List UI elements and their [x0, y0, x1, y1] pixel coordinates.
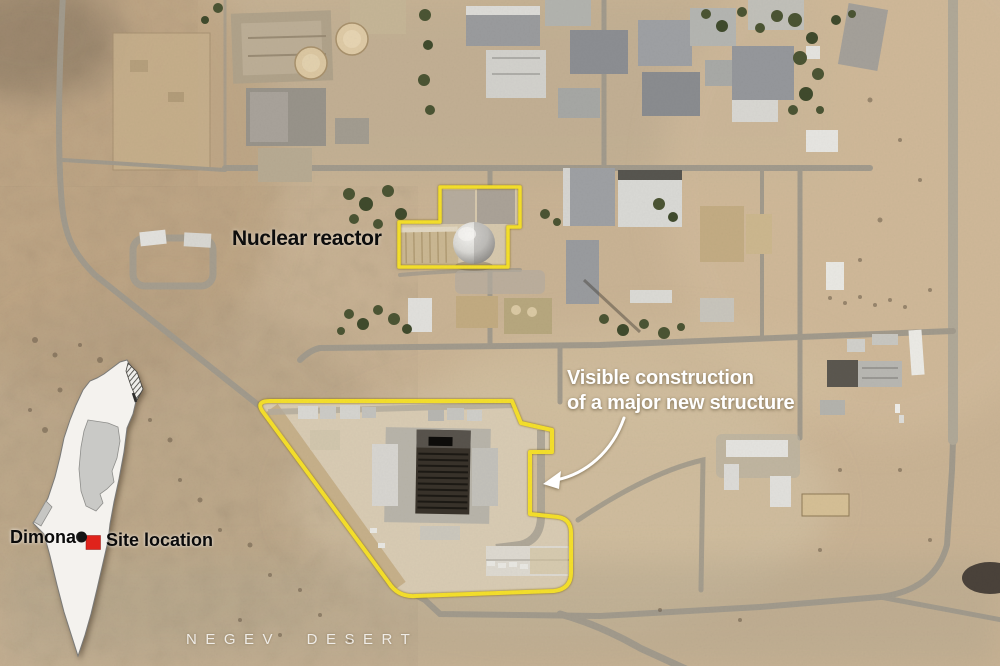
site-location-marker — [86, 536, 101, 550]
satellite-imagery — [0, 0, 1000, 666]
reactor-label: Nuclear reactor — [232, 227, 382, 251]
photo-grain — [0, 0, 1000, 666]
construction-label-line2: of a major new structure — [567, 391, 794, 416]
city-dot-marker — [76, 532, 87, 543]
construction-label: Visible construction of a major new stru… — [567, 366, 794, 416]
satellite-map: Nuclear reactor Visible construction of … — [0, 0, 1000, 666]
inset-city-label: Dimona — [6, 527, 76, 548]
inset-site-label: Site location — [106, 530, 213, 551]
region-label: NEGEV DESERT — [186, 631, 418, 648]
construction-label-line1: Visible construction — [567, 366, 794, 391]
